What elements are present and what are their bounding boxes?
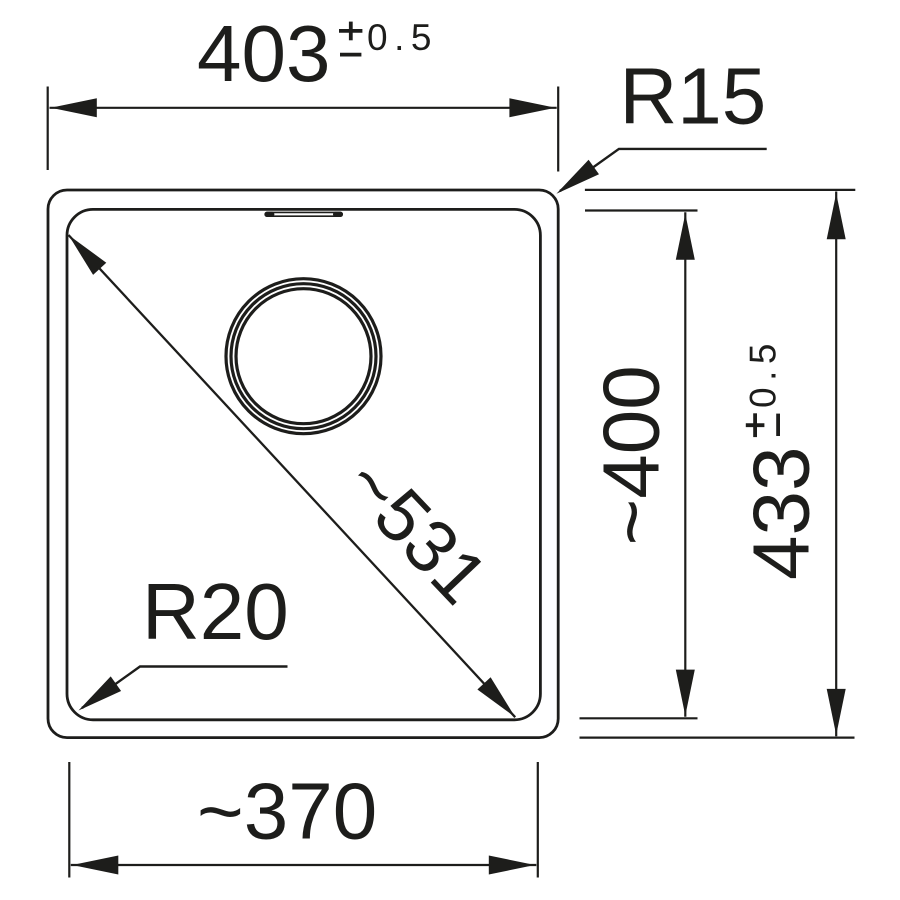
svg-text:0.5: 0.5 <box>367 17 438 58</box>
svg-text:~400: ~400 <box>587 365 676 545</box>
svg-text:~370: ~370 <box>197 767 377 856</box>
svg-text:R20: R20 <box>142 567 289 656</box>
svg-text:0.5: 0.5 <box>743 337 784 408</box>
svg-text:403: 403 <box>197 9 330 98</box>
svg-text:~531: ~531 <box>329 441 504 619</box>
svg-text:433: 433 <box>737 447 826 580</box>
svg-text:R15: R15 <box>620 52 767 141</box>
